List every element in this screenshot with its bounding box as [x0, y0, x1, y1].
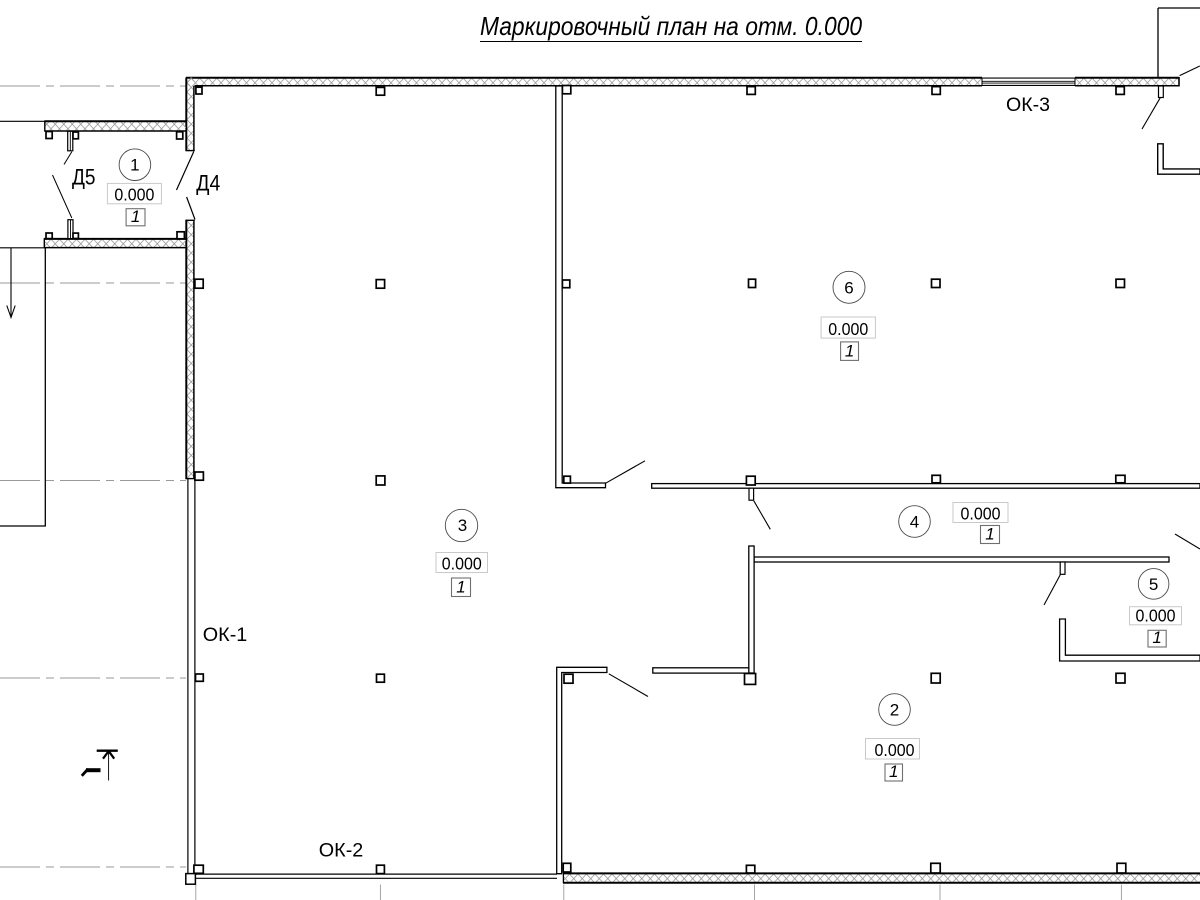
- svg-text:4: 4: [910, 513, 919, 532]
- svg-text:0.000: 0.000: [114, 185, 154, 205]
- svg-text:0.000: 0.000: [1136, 606, 1176, 626]
- svg-text:Д4: Д4: [196, 171, 220, 196]
- svg-text:1: 1: [456, 578, 465, 597]
- svg-text:6: 6: [844, 278, 853, 297]
- svg-text:2: 2: [890, 701, 899, 720]
- svg-text:0.000: 0.000: [875, 740, 915, 760]
- svg-text:5: 5: [1149, 575, 1158, 594]
- svg-text:1: 1: [985, 525, 994, 544]
- svg-text:Маркировочный план на отм. 0.0: Маркировочный план на отм. 0.000: [480, 11, 862, 41]
- svg-text:0.000: 0.000: [961, 503, 1001, 523]
- svg-text:1: 1: [889, 762, 898, 781]
- svg-text:1: 1: [131, 207, 140, 226]
- svg-text:1: 1: [845, 341, 854, 360]
- svg-text:0.000: 0.000: [442, 553, 482, 573]
- svg-text:Д5: Д5: [72, 165, 96, 190]
- svg-text:0.000: 0.000: [828, 319, 868, 339]
- svg-text:1: 1: [130, 156, 139, 175]
- svg-text:ОК-2: ОК-2: [319, 840, 364, 862]
- svg-text:ОК-3: ОК-3: [1006, 94, 1050, 116]
- svg-text:3: 3: [458, 516, 467, 535]
- svg-text:ОК-1: ОК-1: [203, 624, 248, 646]
- svg-text:1: 1: [1152, 628, 1161, 647]
